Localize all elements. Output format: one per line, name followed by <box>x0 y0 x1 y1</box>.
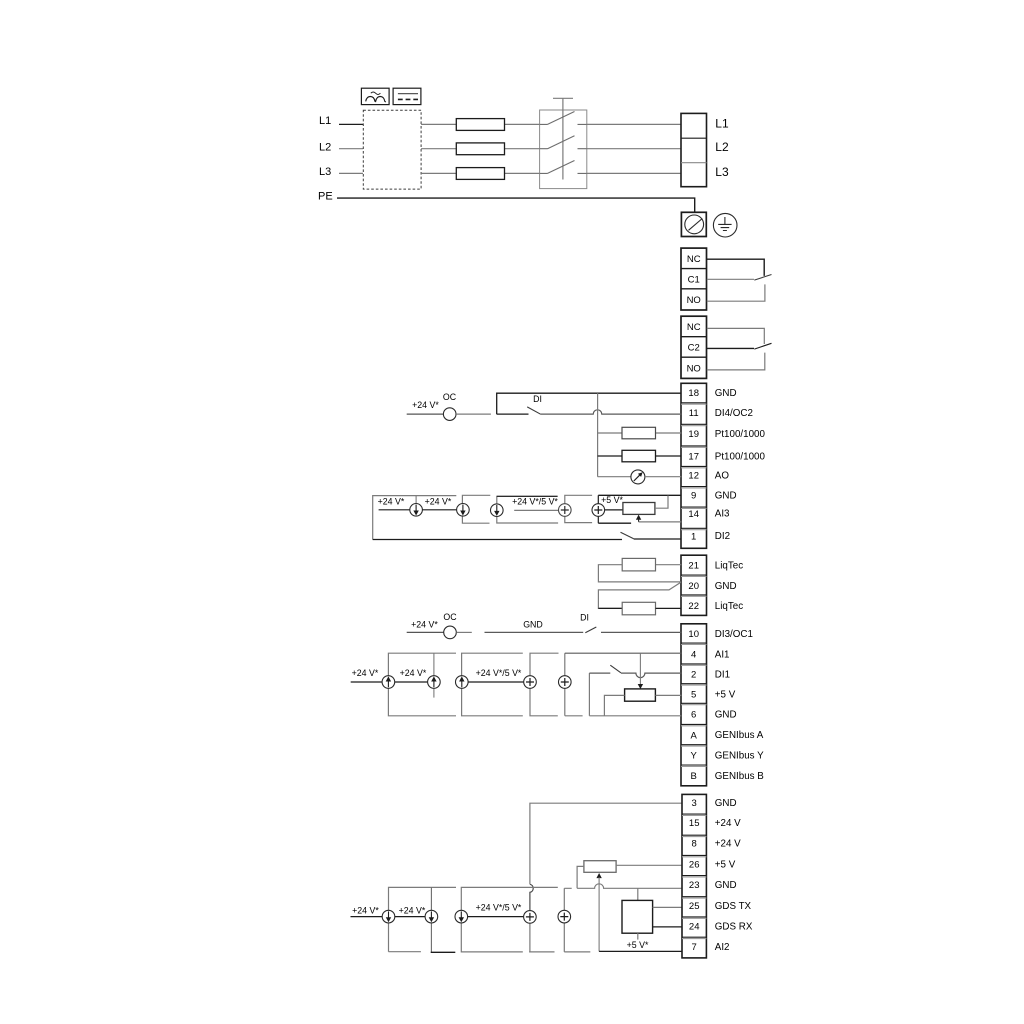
svg-text:B: B <box>691 771 697 782</box>
svg-text:DI4/OC2: DI4/OC2 <box>715 408 753 419</box>
svg-text:11: 11 <box>689 408 699 419</box>
svg-text:19: 19 <box>688 429 699 440</box>
svg-text:+24 V*: +24 V* <box>352 905 379 915</box>
svg-text:1: 1 <box>691 531 696 542</box>
svg-text:NC: NC <box>687 254 701 265</box>
svg-text:+24 V: +24 V <box>715 818 741 829</box>
svg-text:DI2: DI2 <box>715 531 730 542</box>
svg-text:AI3: AI3 <box>715 508 730 519</box>
svg-text:LiqTec: LiqTec <box>715 601 743 612</box>
svg-text:+24 V*/5 V*: +24 V*/5 V* <box>476 903 522 913</box>
svg-text:4: 4 <box>691 650 696 661</box>
svg-text:20: 20 <box>688 581 699 592</box>
svg-text:+24 V*/5 V*: +24 V*/5 V* <box>512 497 558 507</box>
svg-text:NO: NO <box>687 295 701 306</box>
svg-text:+24 V*: +24 V* <box>399 905 426 915</box>
svg-text:GENIbus B: GENIbus B <box>715 771 764 782</box>
svg-text:DI3/OC1: DI3/OC1 <box>715 629 753 640</box>
svg-text:C1: C1 <box>688 274 700 285</box>
svg-text:14: 14 <box>688 509 699 520</box>
svg-text:7: 7 <box>692 942 697 953</box>
svg-text:Y: Y <box>691 751 698 762</box>
svg-text:+24 V*: +24 V* <box>378 497 405 507</box>
svg-text:8: 8 <box>692 839 697 850</box>
svg-text:23: 23 <box>689 880 700 891</box>
svg-text:Pt100/1000: Pt100/1000 <box>715 451 766 462</box>
svg-text:+5 V: +5 V <box>715 689 736 700</box>
svg-text:GDS TX: GDS TX <box>715 901 752 912</box>
svg-text:+24 V*/5 V*: +24 V*/5 V* <box>476 668 522 678</box>
svg-text:Pt100/1000: Pt100/1000 <box>715 429 766 440</box>
svg-text:21: 21 <box>688 561 699 572</box>
svg-text:DI: DI <box>533 394 542 404</box>
svg-text:22: 22 <box>688 601 699 612</box>
svg-text:AI1: AI1 <box>715 650 730 661</box>
svg-text:GND: GND <box>715 798 737 809</box>
svg-text:3: 3 <box>692 798 697 809</box>
svg-text:+24 V*: +24 V* <box>352 668 379 678</box>
svg-text:GDS RX: GDS RX <box>715 921 753 932</box>
svg-text:L2: L2 <box>319 142 331 154</box>
svg-text:L3: L3 <box>319 166 331 178</box>
svg-text:25: 25 <box>689 901 700 912</box>
svg-text:18: 18 <box>688 388 699 399</box>
svg-text:+24 V: +24 V <box>715 839 741 850</box>
svg-text:+24 V*: +24 V* <box>412 400 439 410</box>
svg-text:GND: GND <box>523 619 543 629</box>
svg-text:GENIbus A: GENIbus A <box>715 730 764 741</box>
svg-text:+5 V*: +5 V* <box>601 495 623 505</box>
svg-text:+5 V*: +5 V* <box>627 940 649 950</box>
svg-text:GND: GND <box>715 388 737 399</box>
svg-text:OC: OC <box>443 392 457 402</box>
svg-text:LiqTec: LiqTec <box>715 561 743 572</box>
svg-text:AO: AO <box>715 471 730 482</box>
svg-text:AI2: AI2 <box>715 942 730 953</box>
svg-text:GND: GND <box>715 710 737 721</box>
svg-text:5: 5 <box>691 689 696 700</box>
svg-text:GENIbus Y: GENIbus Y <box>715 750 764 761</box>
svg-text:10: 10 <box>688 629 699 640</box>
svg-text:+5 V: +5 V <box>715 859 736 870</box>
svg-text:17: 17 <box>688 451 699 462</box>
svg-text:GND: GND <box>715 581 737 592</box>
svg-text:C2: C2 <box>688 343 700 354</box>
svg-text:DI1: DI1 <box>715 670 730 681</box>
svg-text:L3: L3 <box>715 165 729 179</box>
svg-text:15: 15 <box>689 818 700 829</box>
svg-text:PE: PE <box>318 191 333 203</box>
svg-text:12: 12 <box>688 471 699 482</box>
svg-text:L2: L2 <box>715 140 729 154</box>
svg-text:2: 2 <box>691 670 696 681</box>
svg-text:DI: DI <box>580 612 589 622</box>
svg-text:GND: GND <box>715 490 737 501</box>
svg-text:A: A <box>691 730 698 741</box>
svg-text:OC: OC <box>443 612 457 622</box>
svg-text:24: 24 <box>689 921 700 932</box>
svg-text:+24 V*: +24 V* <box>400 668 427 678</box>
svg-text:6: 6 <box>691 710 696 721</box>
svg-text:+24 V*: +24 V* <box>411 620 438 630</box>
svg-text:+24 V*: +24 V* <box>425 497 452 507</box>
svg-text:26: 26 <box>689 859 700 870</box>
svg-text:NO: NO <box>687 363 701 374</box>
svg-text:9: 9 <box>691 490 696 501</box>
svg-text:L1: L1 <box>319 115 331 127</box>
svg-text:L1: L1 <box>715 116 729 130</box>
svg-text:GND: GND <box>715 880 737 891</box>
svg-text:NC: NC <box>687 322 701 333</box>
